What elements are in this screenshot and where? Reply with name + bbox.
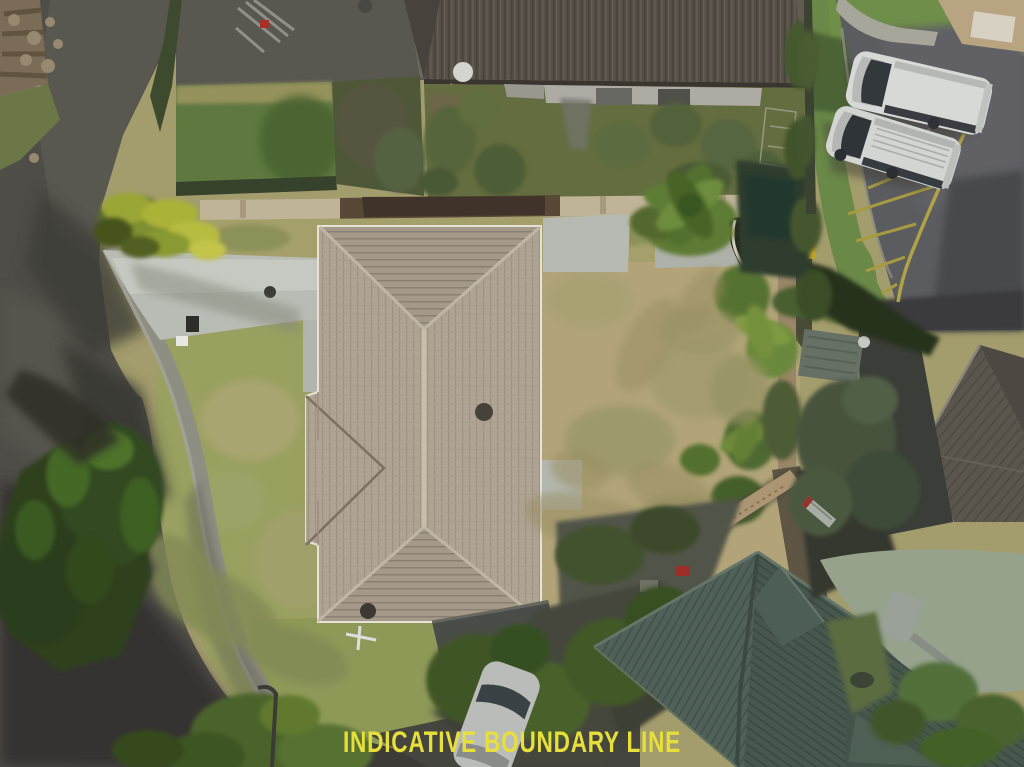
svg-text:INDICATIVE BOUNDARY LINE: INDICATIVE BOUNDARY LINE: [343, 726, 681, 759]
